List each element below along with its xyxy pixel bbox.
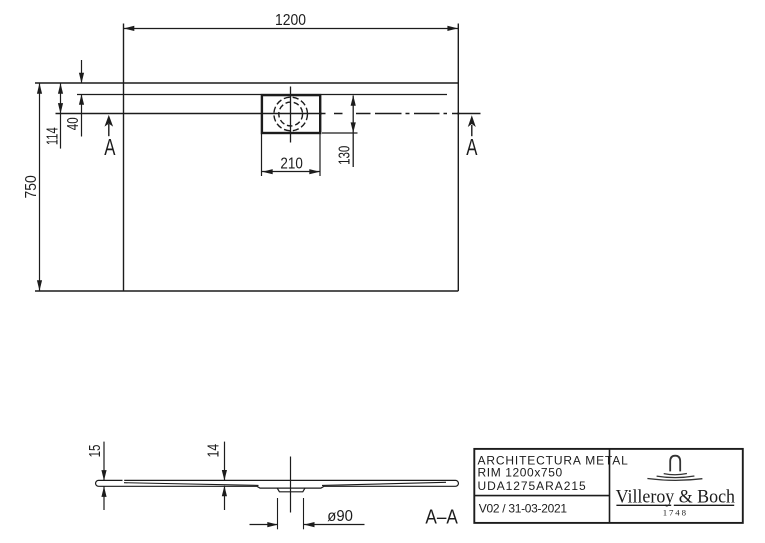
svg-text:V02 / 31-03-2021: V02 / 31-03-2021	[479, 501, 568, 515]
svg-text:14: 14	[205, 444, 223, 458]
svg-text:Villeroy & Boch: Villeroy & Boch	[616, 486, 736, 508]
svg-text:40: 40	[63, 117, 81, 130]
svg-text:210: 210	[280, 155, 302, 172]
svg-text:130: 130	[334, 145, 352, 164]
svg-text:ø90: ø90	[327, 507, 353, 525]
svg-text:UDA1275ARA215: UDA1275ARA215	[478, 479, 587, 493]
svg-text:1748: 1748	[663, 507, 688, 517]
svg-text:RIM 1200x750: RIM 1200x750	[478, 466, 563, 480]
svg-text:114: 114	[43, 127, 62, 145]
svg-text:750: 750	[22, 175, 40, 198]
svg-text:15: 15	[85, 444, 103, 457]
svg-text:A: A	[466, 136, 478, 161]
svg-text:1200: 1200	[275, 11, 306, 29]
svg-text:A–A: A–A	[425, 505, 458, 528]
svg-text:A: A	[104, 136, 116, 161]
